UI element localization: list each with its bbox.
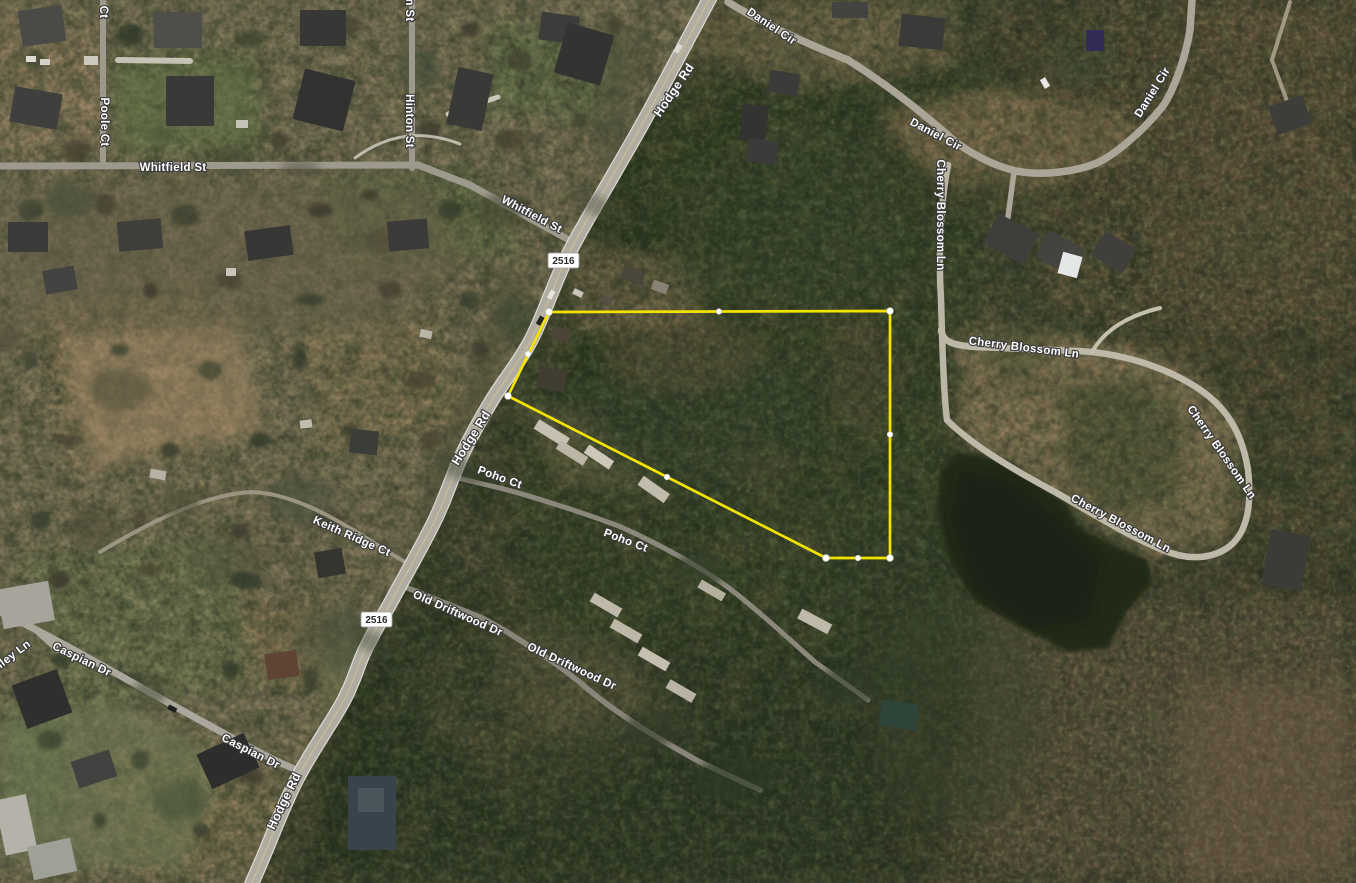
svg-text:Poole Ct: Poole Ct (98, 97, 110, 146)
svg-text:Cherry Blossom Ln: Cherry Blossom Ln (934, 159, 946, 270)
svg-text:Whitfield St: Whitfield St (140, 162, 207, 174)
svg-text:2516: 2516 (365, 615, 388, 626)
svg-text:Ct: Ct (97, 6, 109, 19)
svg-text:n St: n St (403, 0, 415, 21)
svg-text:Hinton St: Hinton St (403, 94, 415, 148)
svg-text:2516: 2516 (552, 256, 575, 267)
